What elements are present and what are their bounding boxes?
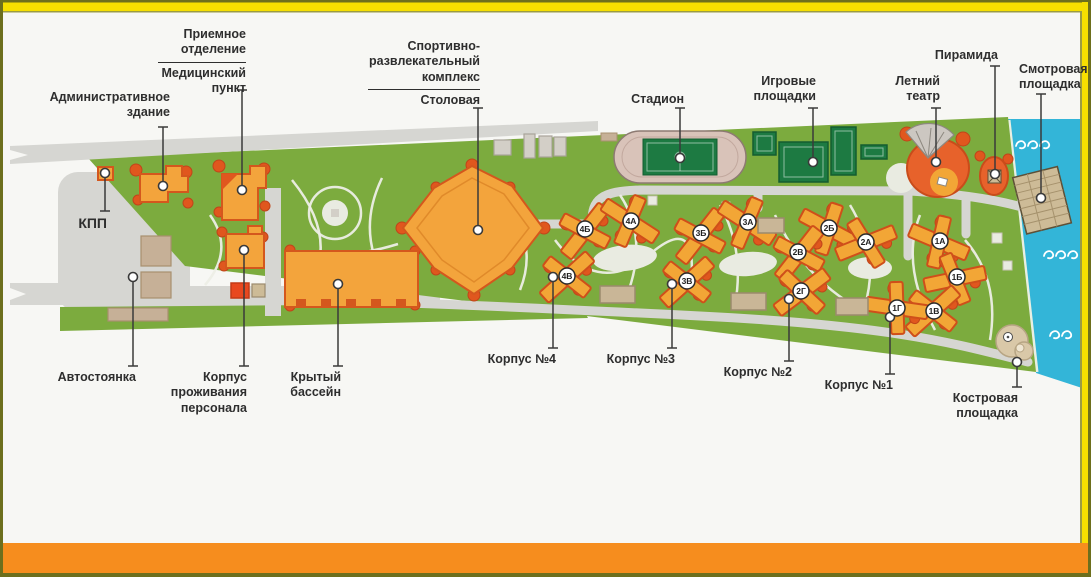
svg-text:1Г: 1Г [892, 303, 902, 313]
callout-sport-dining: Спортивно-развлекательный комплекс Столо… [368, 39, 480, 108]
callout-divider [158, 62, 246, 63]
svg-text:4А: 4А [626, 216, 637, 226]
svg-text:3А: 3А [743, 217, 754, 227]
svg-text:1А: 1А [935, 236, 946, 246]
callout-stadium: Стадион [604, 92, 684, 107]
callout-divider [368, 89, 480, 90]
badge-3b: 3Б [693, 225, 709, 241]
badge-4b: 4Б [577, 221, 593, 237]
badge-4v: 4В [559, 268, 575, 284]
callout-reception-medical: Приемное отделение Медицинский пункт [158, 27, 246, 96]
svg-text:2В: 2В [793, 247, 804, 257]
callout-reception-label: Приемное отделение [181, 27, 246, 56]
callout-indoor-pool: Крытый бассейн [271, 370, 341, 401]
svg-text:3Б: 3Б [696, 228, 707, 238]
badge-1g: 1Г [889, 300, 905, 316]
badge-3v: 3В [679, 273, 695, 289]
callout-summer-theater: Летний театр [860, 74, 940, 105]
callout-campfire: Костровая площадка [938, 391, 1018, 422]
callout-parking: Автостоянка [46, 370, 136, 385]
badge-2b: 2Б [821, 220, 837, 236]
badge-1v: 1В [926, 303, 942, 319]
callout-playgrounds: Игровые площадки [736, 74, 816, 105]
badge-1b: 1Б [949, 269, 965, 285]
badge-2v: 2В [790, 244, 806, 260]
pool-building [285, 251, 418, 308]
staff-housing-building [226, 226, 265, 298]
badge-1a: 1А [932, 233, 948, 249]
svg-text:2Г: 2Г [796, 286, 806, 296]
badge-3a: 3А [740, 214, 756, 230]
callout-korpus2: Корпус №2 [712, 365, 792, 380]
svg-text:1В: 1В [929, 306, 940, 316]
svg-text:1Б: 1Б [952, 272, 963, 282]
svg-text:3В: 3В [682, 276, 693, 286]
svg-text:2А: 2А [861, 237, 872, 247]
callout-staff-housing: Корпус проживания персонала [157, 370, 247, 416]
callout-korpus3: Корпус №3 [595, 352, 675, 367]
svg-text:4Б: 4Б [580, 224, 591, 234]
callout-viewing-platform: Смотровая площадка [1019, 62, 1091, 93]
svg-text:4В: 4В [562, 271, 573, 281]
stadium-track [601, 131, 746, 183]
svg-text:2Б: 2Б [824, 223, 835, 233]
camp-site-map: 4Б 4А 4В 3Б 3А 3В 2Б 2А 2В 2Г 1А 1Б 1В 1… [0, 0, 1091, 577]
callout-kpp: КПП [47, 215, 107, 232]
badge-2g: 2Г [793, 283, 809, 299]
callout-korpus1: Корпус №1 [813, 378, 893, 393]
callout-medical-label: Медицинский пункт [162, 66, 246, 95]
badge-4a: 4А [623, 213, 639, 229]
callout-korpus4: Корпус №4 [476, 352, 556, 367]
callout-sport-complex-label: Спортивно-развлекательный комплекс [369, 39, 480, 84]
callout-admin: Административное здание [40, 90, 170, 121]
callout-pyramid: Пирамида [918, 48, 998, 63]
callout-dining-label: Столовая [421, 93, 481, 107]
badge-2a: 2А [858, 234, 874, 250]
